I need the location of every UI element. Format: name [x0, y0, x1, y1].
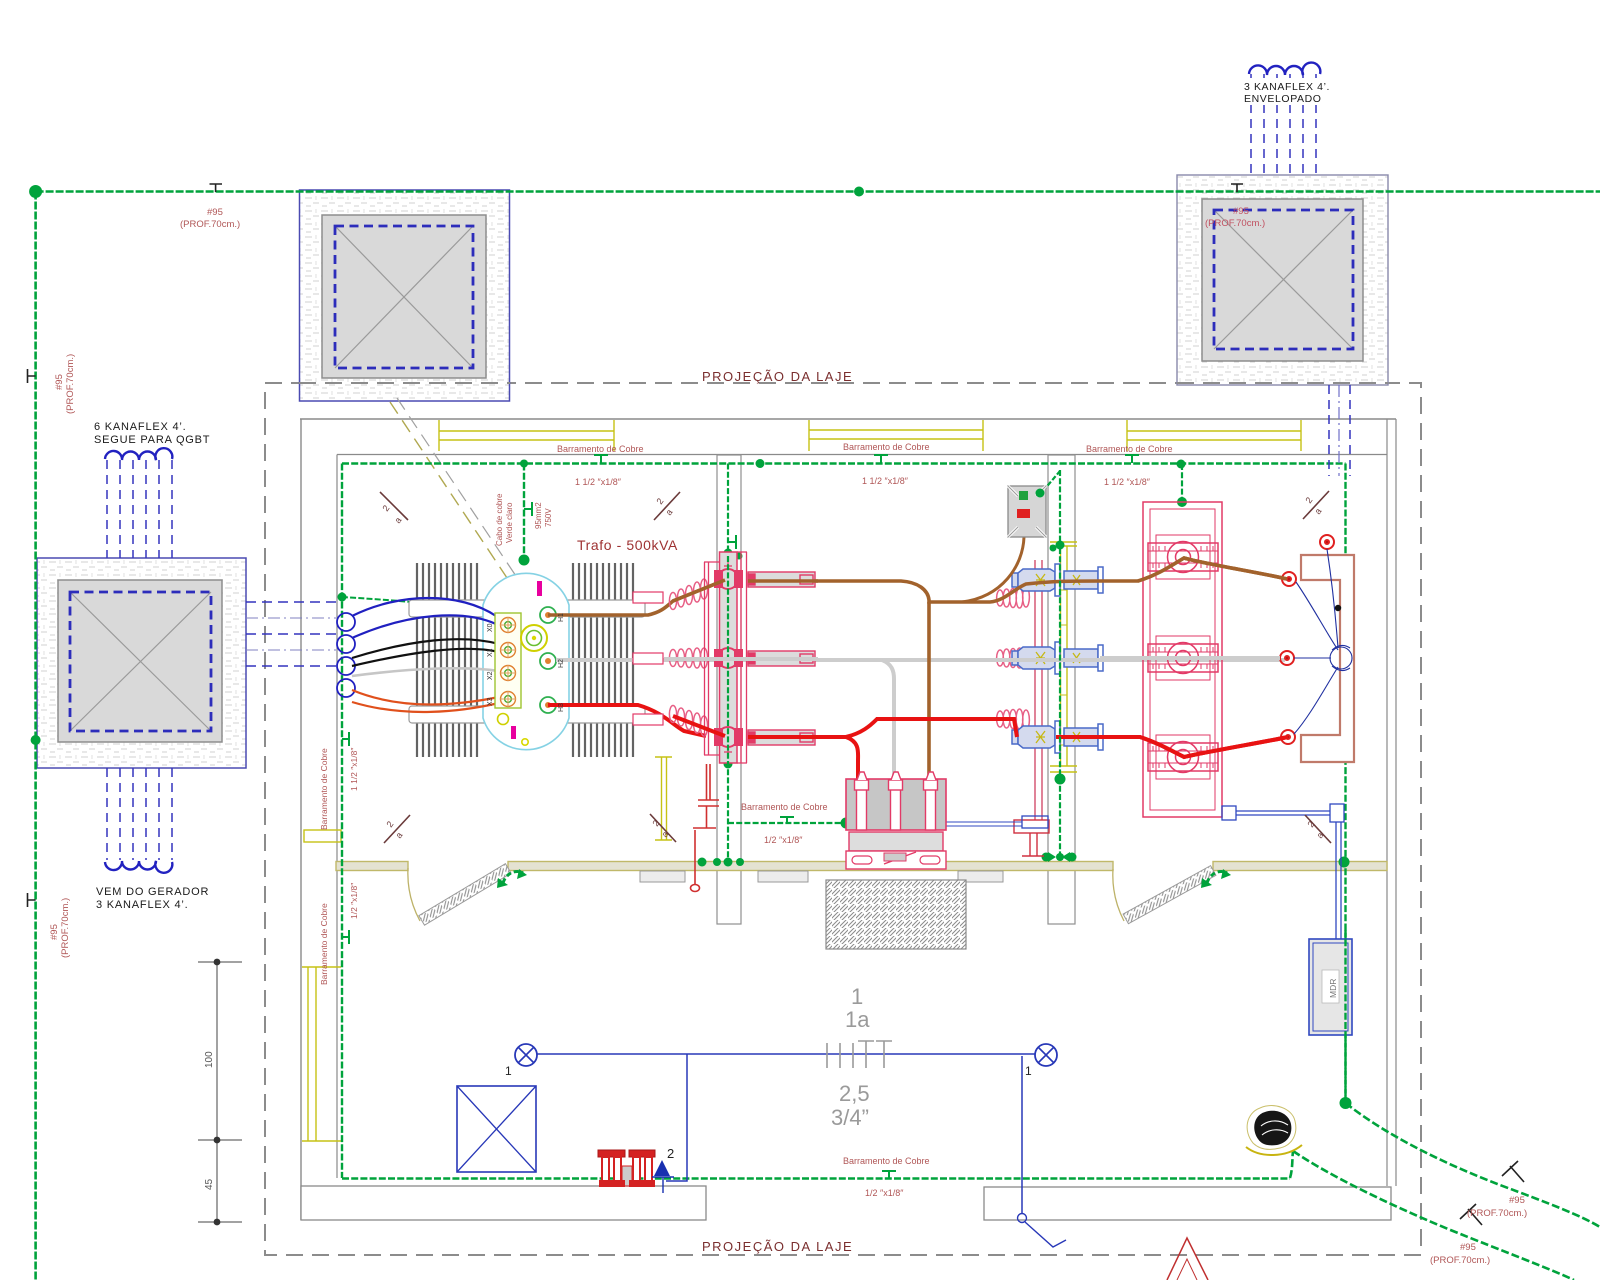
svg-text:(PROF.70cm.): (PROF.70cm.) — [1467, 1208, 1527, 1219]
svg-text:#95: #95 — [1233, 206, 1249, 217]
svg-text:45: 45 — [204, 1178, 215, 1190]
svg-text:750V: 750V — [544, 508, 553, 527]
svg-text:(PROF.70cm.): (PROF.70cm.) — [1430, 1255, 1490, 1266]
svg-text:X0: X0 — [487, 623, 494, 632]
svg-text:Verde claro: Verde claro — [505, 502, 514, 543]
svg-text:#95: #95 — [207, 207, 223, 218]
svg-text:6 KANAFLEX 4’.: 6 KANAFLEX 4’. — [94, 421, 187, 433]
svg-text:ENVELOPADO: ENVELOPADO — [1244, 93, 1322, 105]
svg-text:1a: 1a — [845, 1007, 870, 1032]
svg-text:Barramento de Cobre: Barramento de Cobre — [843, 1156, 930, 1166]
svg-text:X2: X2 — [487, 671, 494, 680]
svg-text:2,5: 2,5 — [839, 1081, 870, 1106]
svg-text:X1: X1 — [487, 648, 494, 657]
svg-text:1 1/2 ″x1/8″: 1 1/2 ″x1/8″ — [1104, 477, 1151, 487]
svg-text:1/2 ″x1/8″: 1/2 ″x1/8″ — [865, 1188, 904, 1198]
svg-text:MDR: MDR — [1328, 979, 1338, 998]
svg-text:1/2 ″x1/8″: 1/2 ″x1/8″ — [349, 883, 359, 919]
svg-text:H3: H3 — [558, 703, 565, 712]
svg-text:H2: H2 — [558, 659, 565, 668]
svg-text:#95: #95 — [49, 924, 60, 940]
svg-text:1 1/2 ″x1/8″: 1 1/2 ″x1/8″ — [349, 748, 359, 791]
svg-text:Barramento de Cobre: Barramento de Cobre — [843, 442, 930, 452]
svg-text:Barramento de Cobre: Barramento de Cobre — [557, 444, 644, 454]
svg-text:H1: H1 — [558, 613, 565, 622]
svg-text:VEM DO GERADOR: VEM DO GERADOR — [96, 886, 209, 898]
svg-text:SEGUE PARA QGBT: SEGUE PARA QGBT — [94, 434, 210, 446]
svg-text:(PROF.70cm.): (PROF.70cm.) — [180, 219, 240, 230]
svg-text:1/2 ″x1/8″: 1/2 ″x1/8″ — [764, 835, 803, 845]
svg-text:100: 100 — [204, 1051, 215, 1068]
svg-text:Barramento de Cobre: Barramento de Cobre — [319, 748, 329, 830]
svg-text:#95: #95 — [54, 374, 65, 390]
svg-text:#95: #95 — [1460, 1242, 1476, 1253]
svg-text:1: 1 — [851, 984, 863, 1009]
svg-text:3 KANAFLEX 4’.: 3 KANAFLEX 4’. — [1244, 81, 1330, 93]
svg-text:Barramento de Cobre: Barramento de Cobre — [1086, 444, 1173, 454]
svg-text:Barramento de Cobre: Barramento de Cobre — [319, 903, 329, 985]
svg-text:3 KANAFLEX 4’.: 3 KANAFLEX 4’. — [96, 899, 189, 911]
svg-text:Trafo - 500kVA: Trafo - 500kVA — [577, 537, 678, 553]
svg-text:Barramento de Cobre: Barramento de Cobre — [741, 802, 828, 812]
svg-text:PROJEÇÃO DA LAJE: PROJEÇÃO DA LAJE — [702, 369, 853, 384]
svg-text:2: 2 — [667, 1146, 674, 1161]
svg-text:1 1/2 ″x1/8″: 1 1/2 ″x1/8″ — [862, 476, 909, 486]
svg-text:95mm2: 95mm2 — [534, 502, 543, 529]
svg-text:#95: #95 — [1509, 1195, 1525, 1206]
svg-text:X3: X3 — [487, 697, 494, 706]
svg-text:Cabo de cobre: Cabo de cobre — [495, 493, 504, 546]
svg-text:(PROF.70cm.): (PROF.70cm.) — [65, 354, 76, 414]
svg-text:1: 1 — [505, 1064, 512, 1078]
svg-text:(PROF.70cm.): (PROF.70cm.) — [60, 898, 71, 958]
svg-text:PROJEÇÃO DA LAJE: PROJEÇÃO DA LAJE — [702, 1239, 853, 1254]
svg-text:1 1/2 ″x1/8″: 1 1/2 ″x1/8″ — [575, 477, 622, 487]
svg-text:3/4”: 3/4” — [831, 1105, 869, 1130]
svg-text:1: 1 — [1025, 1064, 1032, 1078]
svg-text:(PROF.70cm.): (PROF.70cm.) — [1205, 218, 1265, 229]
